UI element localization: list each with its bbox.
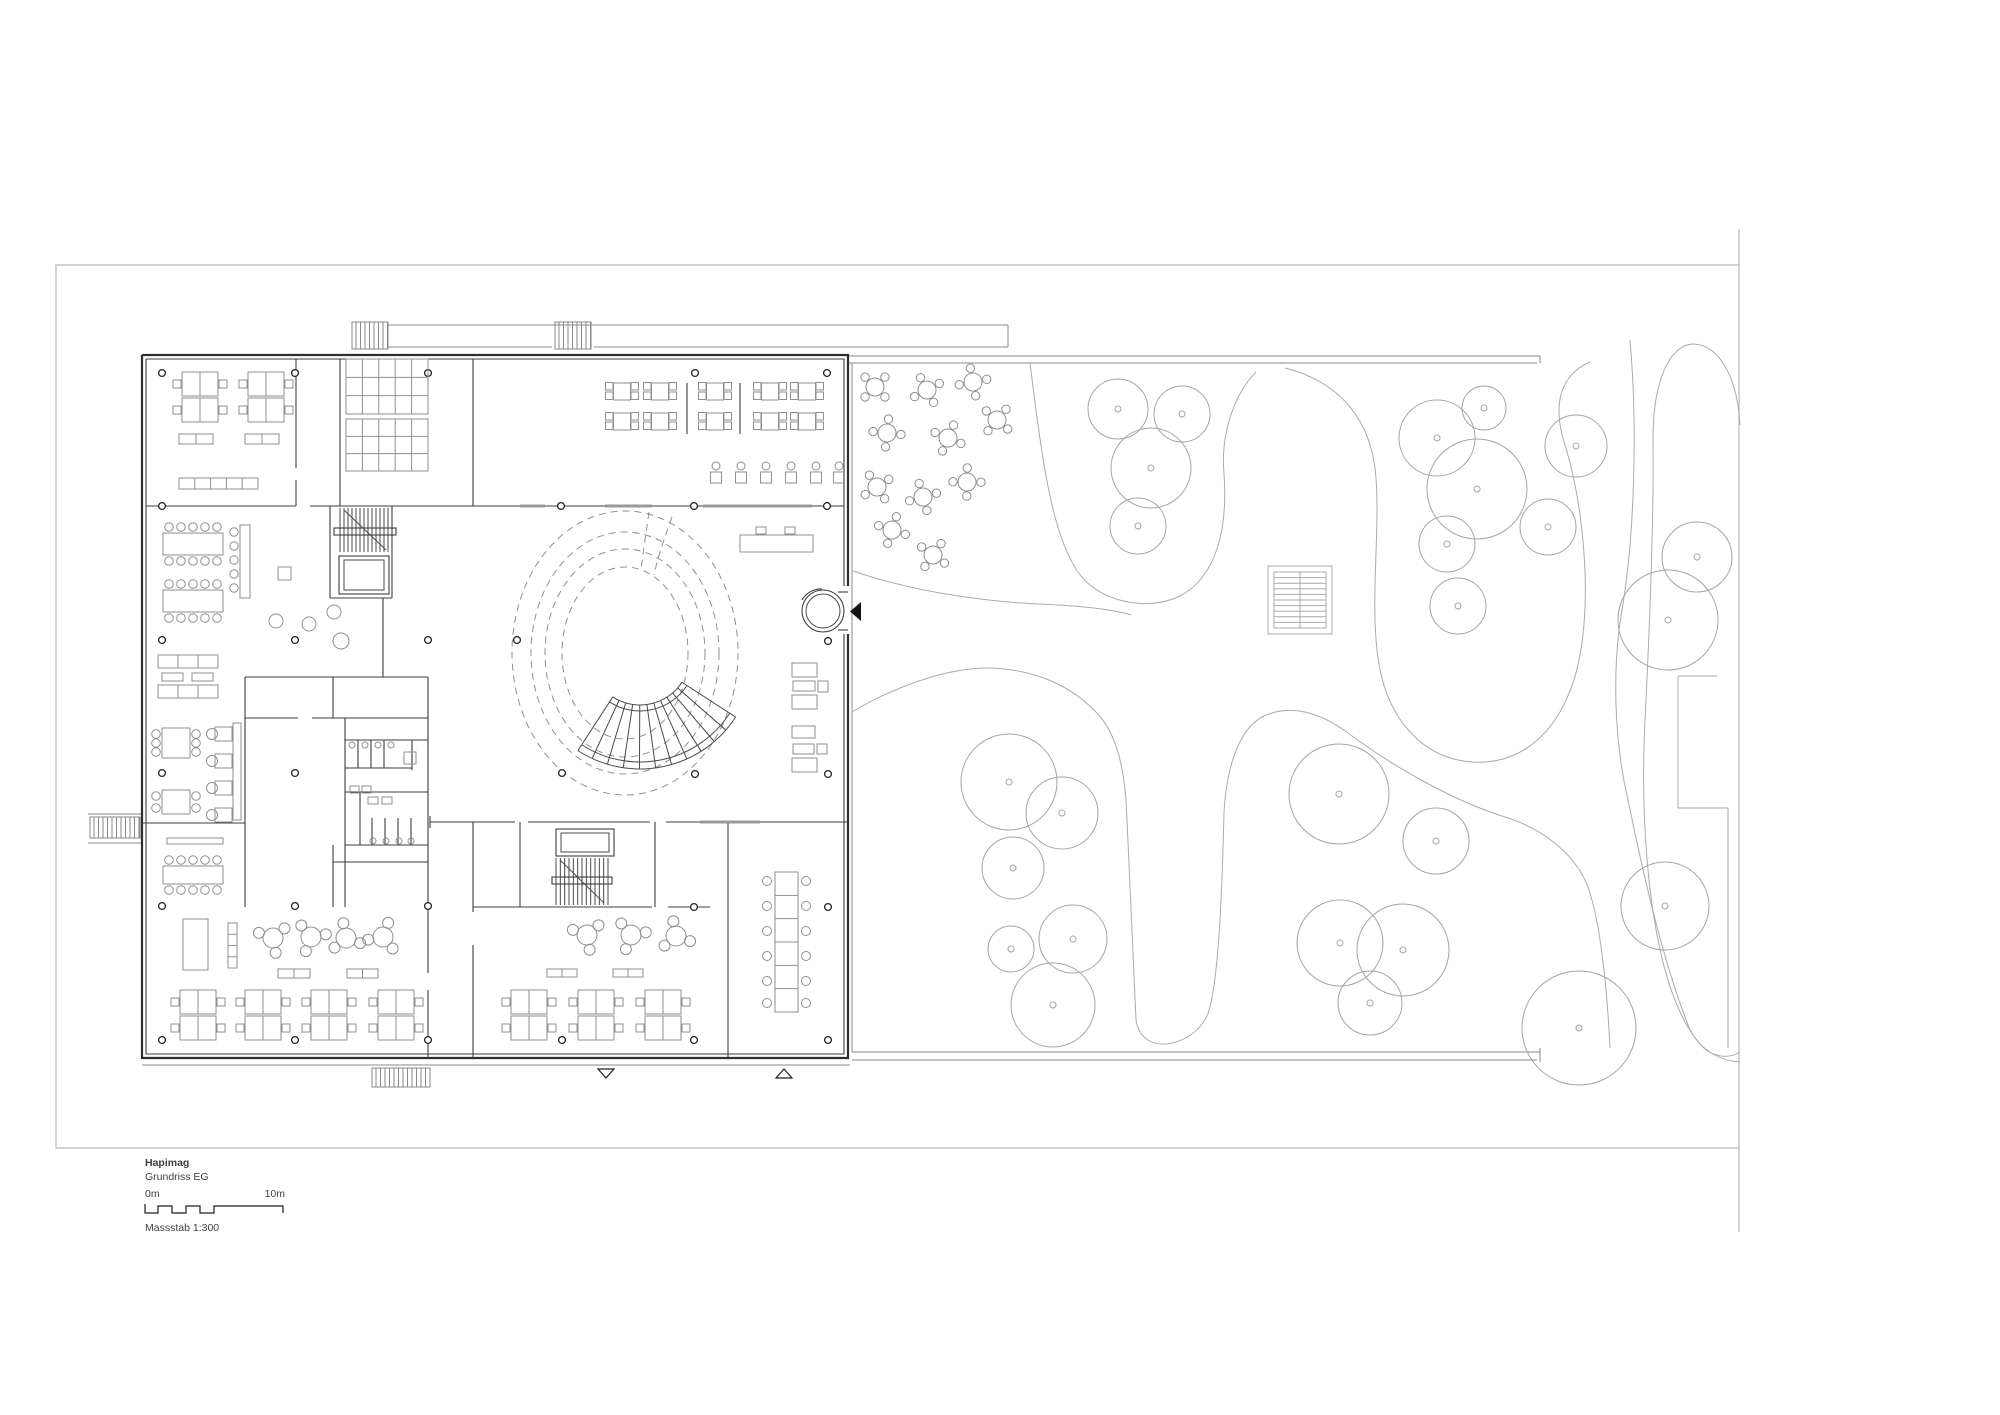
scalebar-end-label: 10m bbox=[245, 1188, 285, 1201]
scale-label: Massstab 1:300 bbox=[145, 1222, 219, 1235]
project-title: Hapimag bbox=[145, 1157, 189, 1170]
drawing-title: Grundriss EG bbox=[145, 1171, 209, 1184]
scalebar-start-label: 0m bbox=[145, 1188, 160, 1201]
floor-plan-svg bbox=[0, 0, 2000, 1415]
drawing-sheet: Hapimag Grundriss EG 0m 10m Massstab 1:3… bbox=[0, 0, 2000, 1415]
